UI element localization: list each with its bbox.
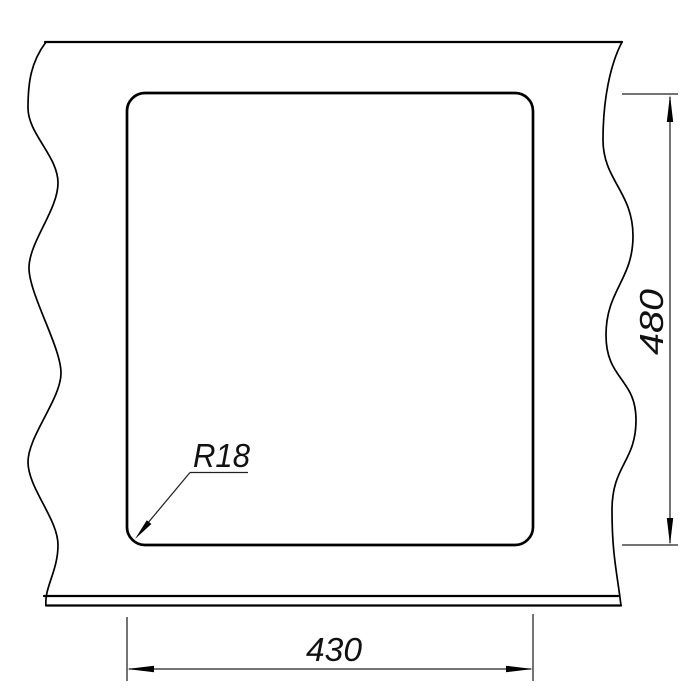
height-dimension: 480 (622, 94, 678, 545)
technical-drawing: 480 430 R18 (0, 0, 700, 700)
cutout-outline (127, 93, 533, 545)
drawing-canvas: 480 430 R18 (0, 0, 700, 700)
width-arrow-left-icon (127, 666, 154, 672)
height-arrow-up-icon (667, 95, 673, 122)
left-break-line (28, 42, 61, 606)
radius-leader-arrow-icon (135, 520, 151, 539)
height-arrow-down-icon (667, 518, 673, 545)
radius-callout: R18 (135, 437, 251, 539)
material-outline (28, 42, 636, 606)
width-dimension: 430 (127, 614, 533, 681)
radius-leader-line (142, 473, 190, 531)
right-break-line (603, 42, 636, 606)
width-dimension-label: 430 (306, 631, 363, 668)
height-dimension-label: 480 (633, 288, 670, 355)
width-arrow-right-icon (506, 666, 533, 672)
radius-label: R18 (193, 437, 251, 474)
